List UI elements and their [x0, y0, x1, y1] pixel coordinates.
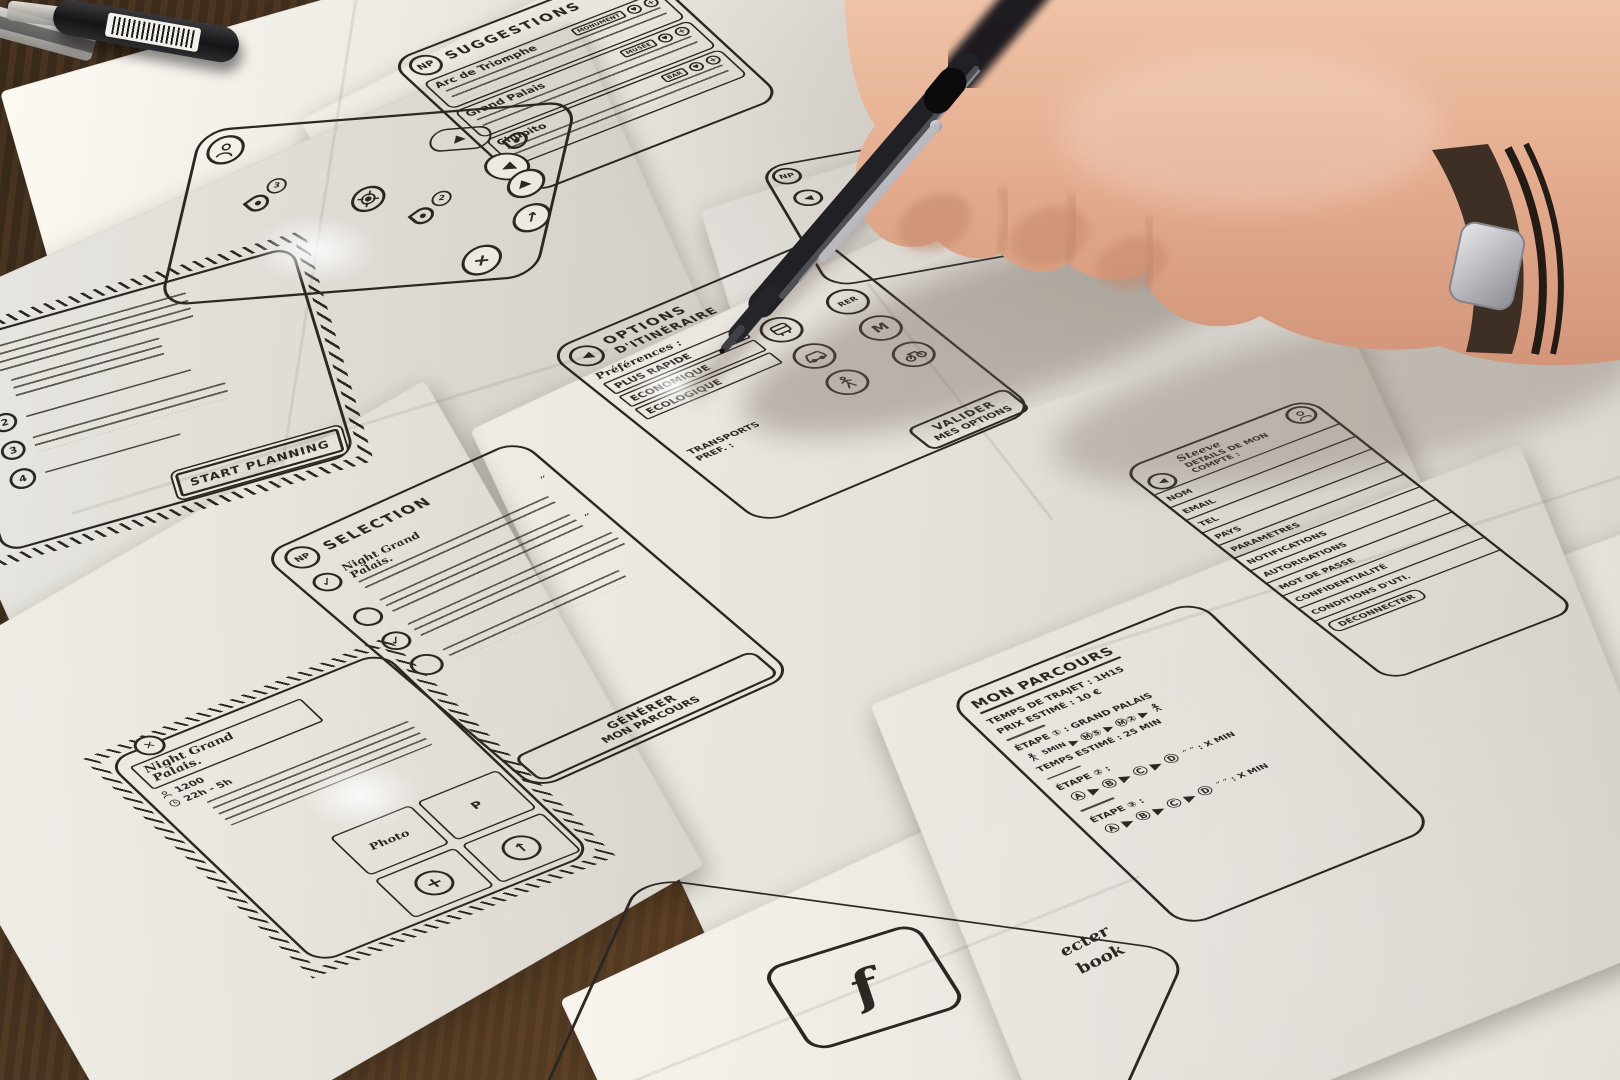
car-icon — [784, 338, 845, 374]
metro-icon: M — [850, 310, 911, 346]
metro-letter: M — [868, 320, 893, 335]
black-pen-with-barcode — [31, 0, 249, 76]
rer-label: RER — [836, 295, 860, 308]
add-icon: + — [407, 866, 462, 900]
back-glyph: ◀ — [802, 193, 815, 202]
share-glyph: ↑ — [509, 839, 534, 856]
photo-label: Photo — [366, 828, 413, 852]
app-logo-text: NP — [778, 172, 796, 180]
person-icon — [213, 141, 239, 160]
walk-time: 5m — [1141, 214, 1161, 223]
back-arrow: ◀ — [1155, 477, 1171, 486]
add-glyph: + — [420, 873, 449, 892]
p-label: P — [467, 799, 486, 812]
play-icon: ▶ — [454, 132, 468, 145]
photo-of-wireframe-sketches: NP SUGGESTIONS Arc de Triomphe MONUMENT … — [0, 0, 1620, 1080]
person-icon — [1288, 408, 1314, 423]
facebook-f-letter: f — [836, 959, 892, 1015]
close-glyph: ✕ — [140, 739, 159, 751]
pens-on-table — [0, 0, 300, 110]
share-icon: ↑ — [494, 831, 549, 865]
walk-icon — [1242, 195, 1262, 206]
